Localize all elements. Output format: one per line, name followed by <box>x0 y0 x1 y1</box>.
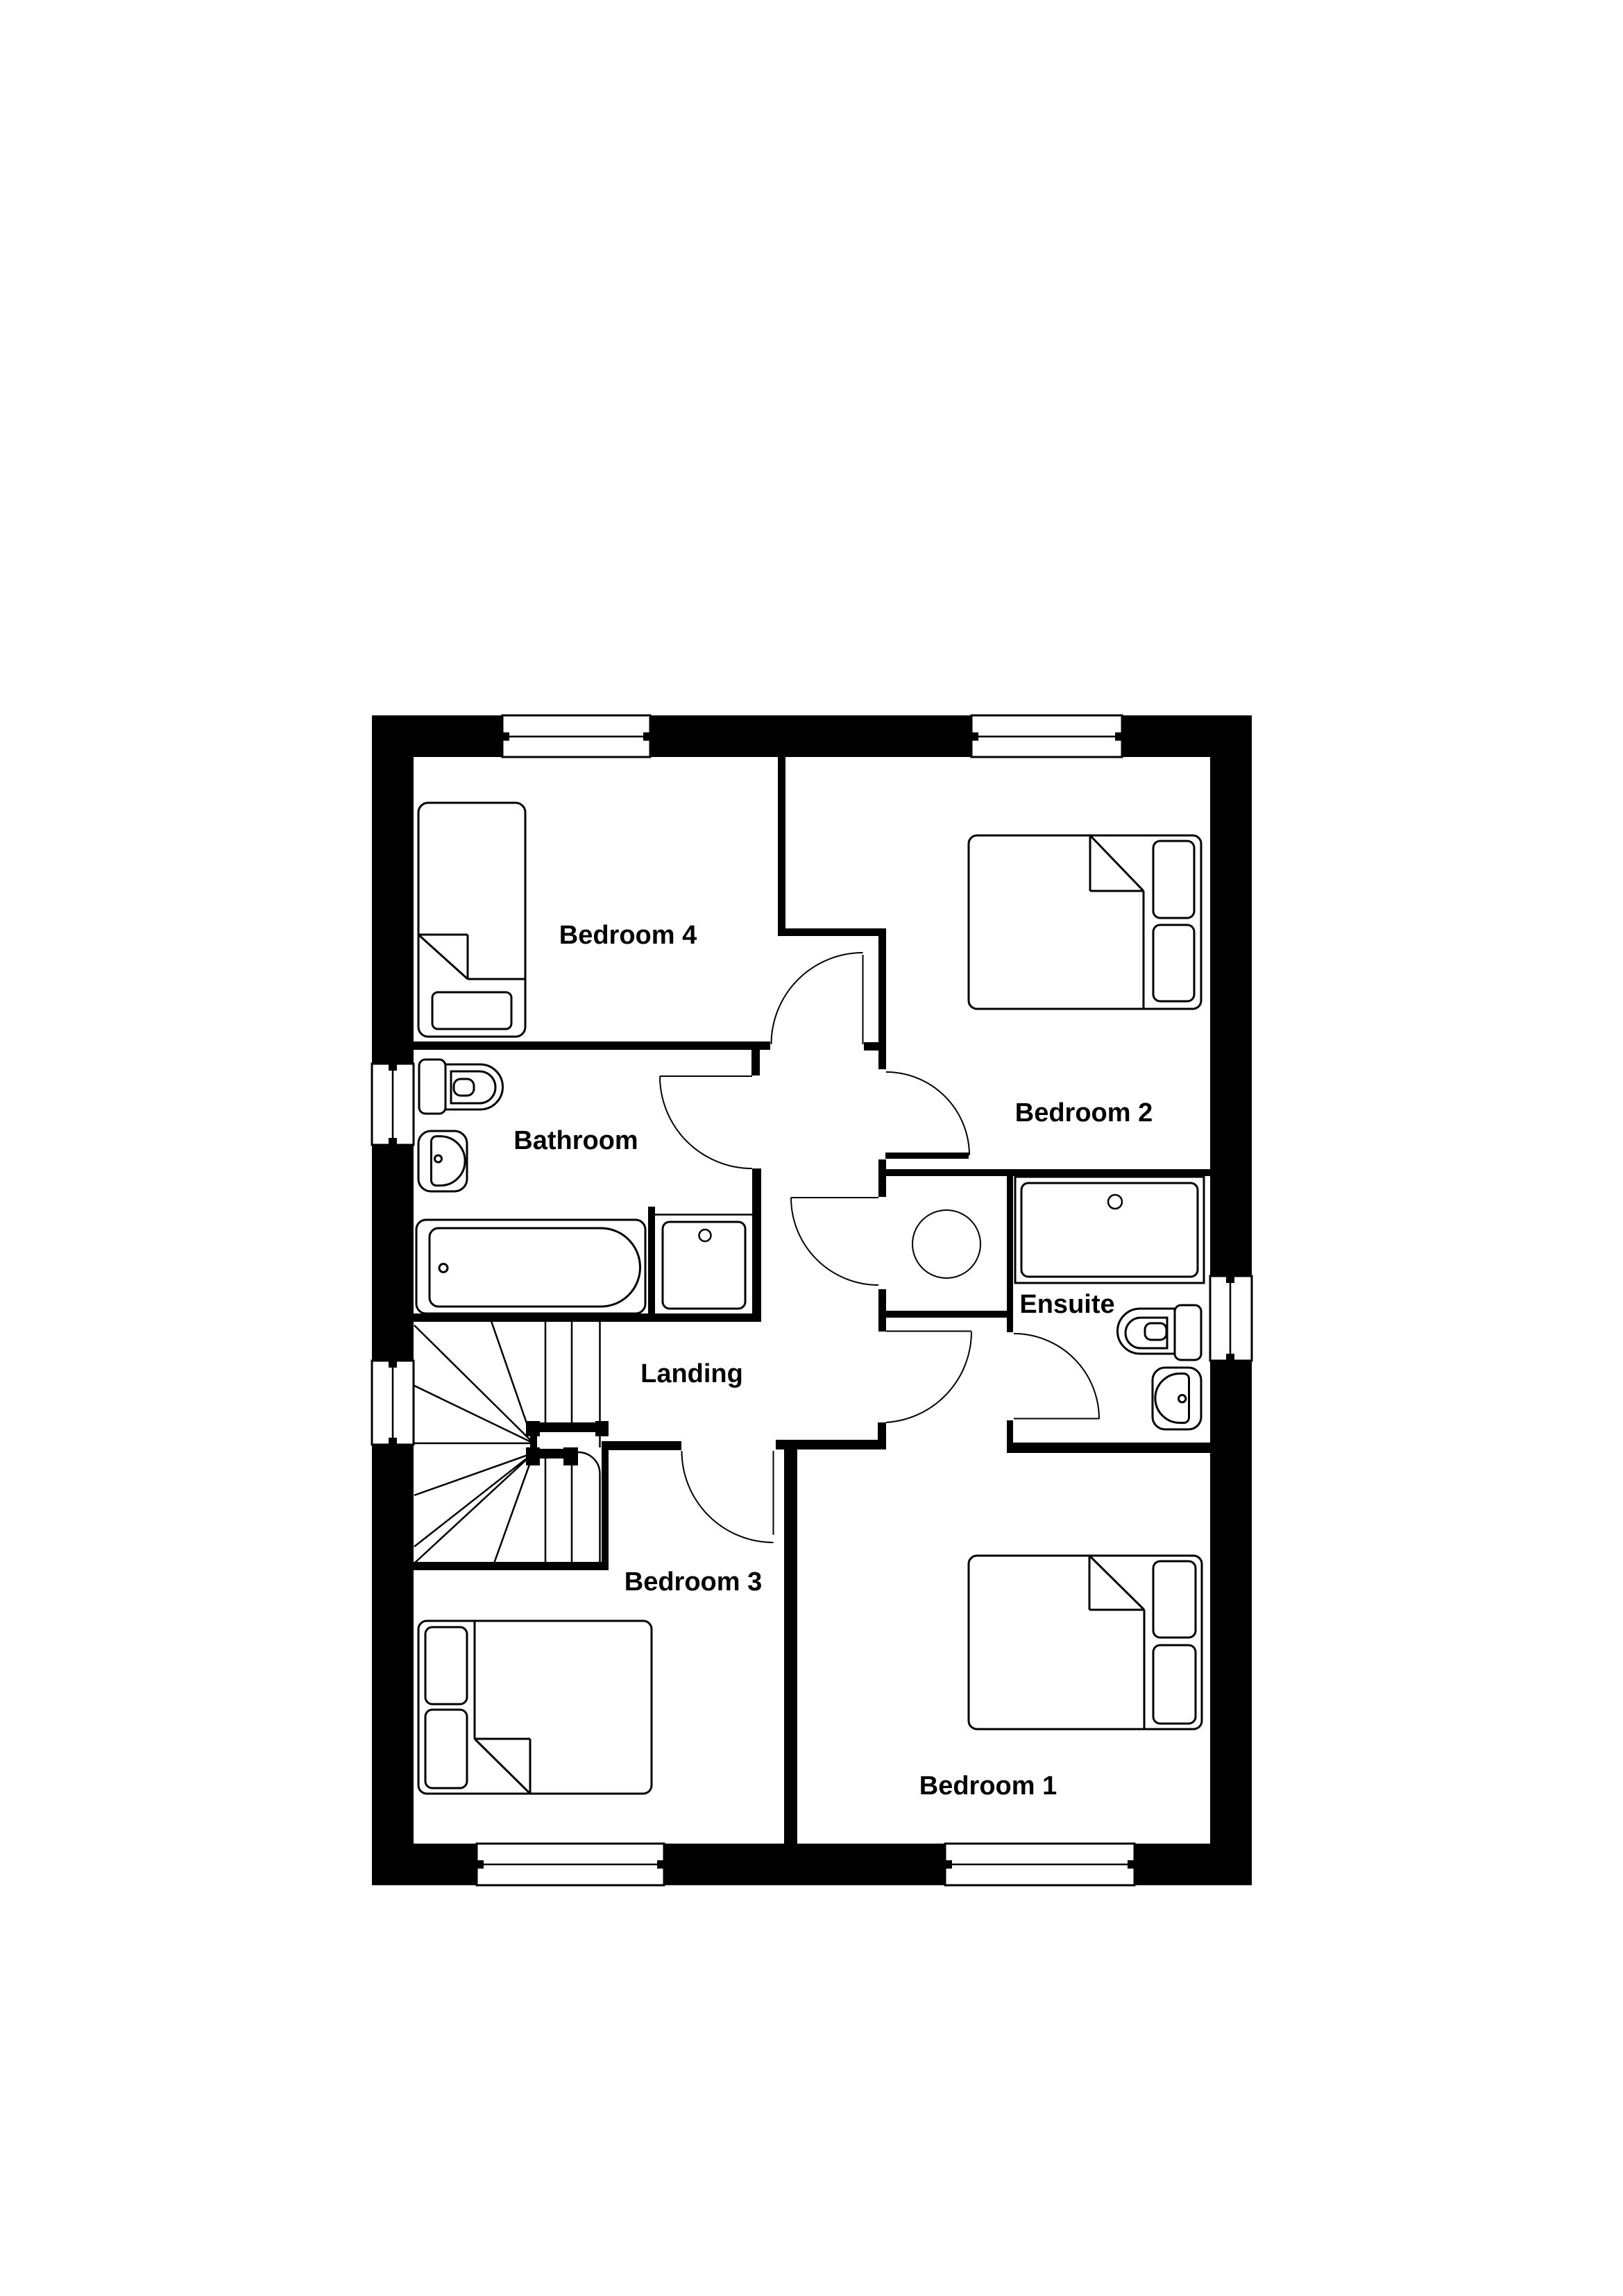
svg-text:Bathroom: Bathroom <box>513 1126 638 1155</box>
svg-text:Landing: Landing <box>640 1359 743 1388</box>
svg-text:Bedroom 3: Bedroom 3 <box>624 1567 762 1597</box>
svg-text:Bedroom 2: Bedroom 2 <box>1015 1098 1153 1128</box>
svg-text:Bedroom 1: Bedroom 1 <box>919 1771 1057 1801</box>
svg-text:Ensuite: Ensuite <box>1019 1290 1114 1319</box>
svg-text:Bedroom 4: Bedroom 4 <box>559 921 697 950</box>
